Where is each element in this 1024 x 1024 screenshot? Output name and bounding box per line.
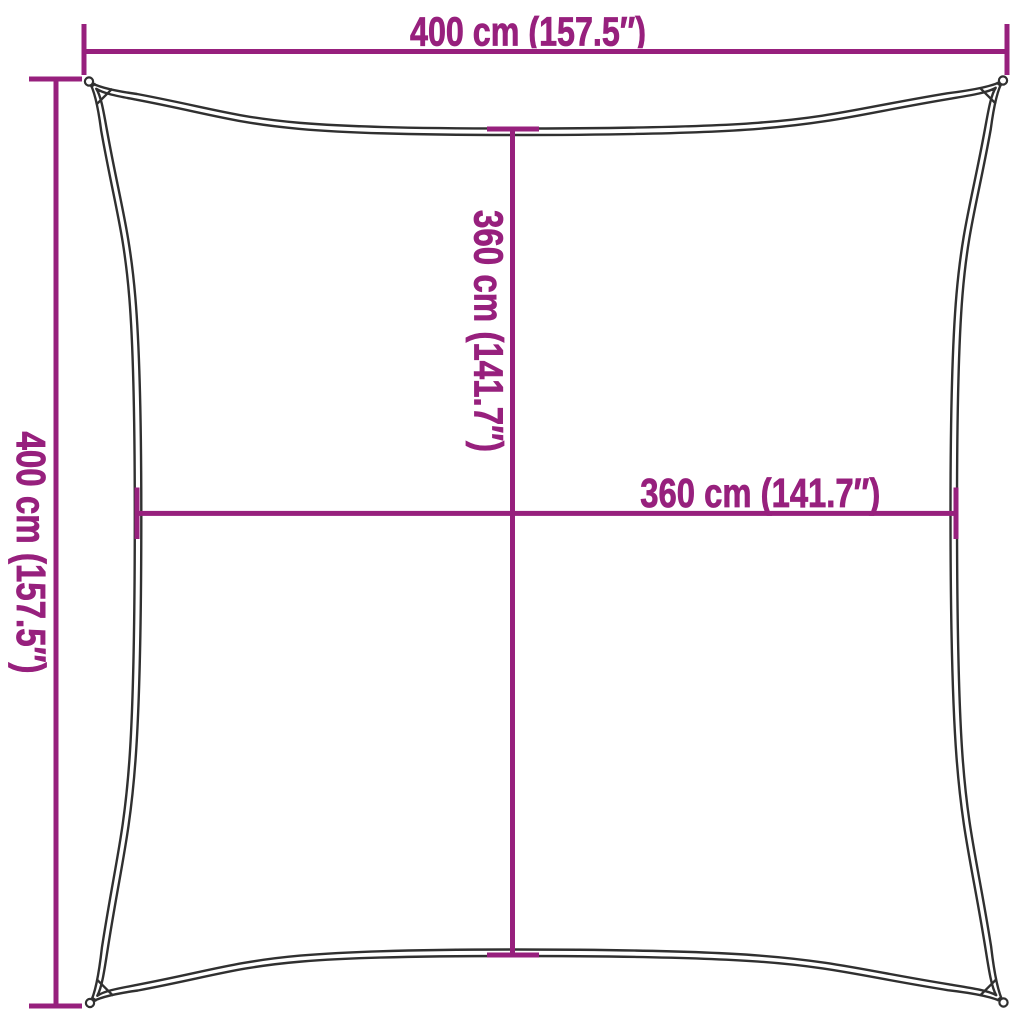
- svg-text:400 cm (157.5″): 400 cm (157.5″): [8, 432, 54, 674]
- svg-text:400 cm (157.5″): 400 cm (157.5″): [410, 9, 646, 55]
- svg-text:360 cm (141.7″): 360 cm (141.7″): [465, 210, 511, 452]
- svg-text:360 cm (141.7″): 360 cm (141.7″): [640, 470, 880, 516]
